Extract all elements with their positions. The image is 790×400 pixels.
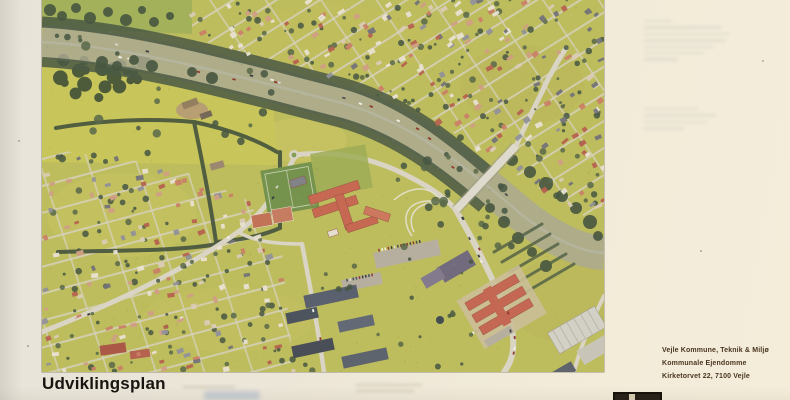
publisher-address: Kirketorvet 22, 7100 Vejle	[662, 370, 769, 383]
scanned-plan-page: Udviklingsplan Vejle Kommune, Teknik & M…	[0, 0, 790, 400]
dust-speck	[762, 60, 764, 62]
print-bleed-paragraph	[644, 20, 734, 65]
print-bleed-smudge	[356, 384, 428, 400]
print-bleed-box	[204, 391, 260, 400]
publisher-block: Vejle Kommune, Teknik & Miljø Kommunale …	[662, 344, 769, 383]
dust-speck	[18, 140, 20, 142]
publisher-department: Kommunale Ejendomme	[662, 357, 769, 370]
dust-speck	[700, 250, 702, 252]
aerial-photo-svg	[42, 0, 604, 372]
dust-speck	[27, 345, 29, 347]
kommune-logo-mark	[629, 394, 635, 400]
kommune-logo	[613, 392, 662, 400]
scan-wash	[42, 0, 604, 372]
publisher-name: Vejle Kommune, Teknik & Miljø	[662, 344, 769, 357]
aerial-photo	[42, 0, 604, 372]
page-edge-shadow	[0, 0, 22, 400]
page-title: Udviklingsplan	[42, 374, 166, 394]
print-bleed-paragraph	[644, 108, 724, 134]
